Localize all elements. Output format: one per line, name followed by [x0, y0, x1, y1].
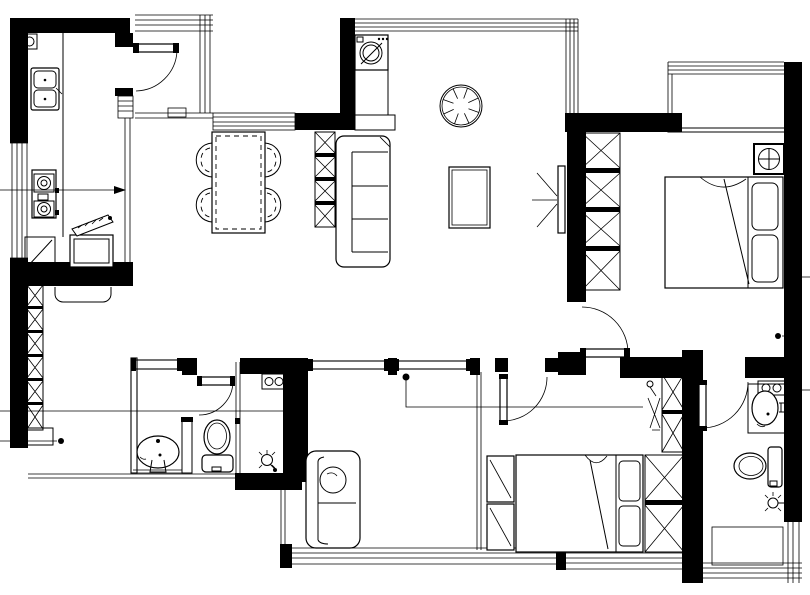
ensuite-shower-head: [765, 492, 786, 511]
kitchen-sink: [31, 68, 62, 110]
side-cabinet: [355, 70, 388, 115]
kitchen-entry-door: [133, 43, 179, 91]
nightstand: [487, 456, 514, 502]
sofa: [336, 136, 390, 267]
room-master-bedroom: [582, 133, 802, 339]
bedroom3-wardrobe: [645, 455, 684, 552]
ensuite-toilet: [734, 447, 782, 487]
switch-dot: [775, 333, 781, 339]
bathroom-1-door: [197, 376, 235, 415]
kitchen-glass-strip: [118, 96, 133, 118]
hall-threshold: [28, 474, 235, 478]
floor-plan-page: [0, 0, 810, 595]
dining-top-window: [213, 113, 295, 130]
laundry-room-floor: [712, 527, 783, 565]
coffee-table: [449, 167, 490, 228]
washing-machine: [355, 35, 388, 70]
bed3: [516, 455, 643, 552]
ac-fan-unit: [754, 144, 784, 174]
room-bedroom-2: [306, 372, 481, 550]
door-swing-arc: [136, 51, 177, 91]
tall-x-cabinet: [27, 285, 43, 430]
room-ensuite-bathroom: [712, 381, 786, 565]
room-hallway: [25, 285, 53, 445]
drying-rack: [647, 381, 660, 430]
kitchen-south-niche: [55, 287, 111, 302]
cabinet-end: [25, 428, 53, 445]
ceiling-fan: [440, 85, 482, 127]
leader-bottom-left: [0, 438, 64, 444]
nightstand: [487, 504, 514, 550]
loveseat-sofa: [306, 451, 360, 548]
bedroom-3-door: [499, 374, 547, 425]
floor-plan-drawing: [0, 0, 810, 595]
door-swing-arc: [199, 381, 233, 415]
master-wardrobe: [582, 133, 620, 290]
bottom-window-band-b: [562, 553, 684, 569]
wall-tv: [532, 166, 565, 233]
door-swing-arc: [503, 377, 547, 421]
x-shelf-unit: [315, 132, 335, 227]
room-kitchen: [22, 33, 113, 302]
bathroom1-toilet: [202, 420, 233, 472]
walls: [10, 18, 802, 583]
master-bedroom-door: [580, 307, 630, 358]
shower-head: [259, 450, 277, 472]
door-swing-arc: [702, 382, 748, 428]
room-living-dining: [196, 35, 565, 267]
leader-arrow: [114, 186, 126, 194]
door-mat: [168, 108, 186, 117]
glass-partition: [236, 362, 240, 473]
basin-partition: [181, 417, 193, 473]
bedroom3-closet: [662, 374, 684, 452]
counter-ledge: [355, 115, 395, 130]
cooktop: [32, 170, 59, 218]
leader-polyline-center: [403, 374, 644, 408]
room-bedroom-3: [487, 374, 684, 552]
laundry-window-band: [703, 522, 802, 583]
bedroom-divider-wall: [477, 372, 481, 550]
appliance-open-lid: [70, 215, 113, 267]
bathroom1-left-wall: [131, 358, 137, 473]
ensuite-bathroom-door: [697, 380, 748, 431]
master-bay-window: [668, 62, 784, 132]
bathroom1-window-strip: [131, 358, 182, 371]
room-shared-bathroom: [131, 358, 287, 473]
entry-porch-edge: [135, 15, 213, 118]
pedestal-washbasin: [133, 436, 182, 473]
dining-table: [212, 132, 265, 233]
master-bed: [665, 177, 783, 288]
door-swing-arc: [582, 307, 628, 353]
